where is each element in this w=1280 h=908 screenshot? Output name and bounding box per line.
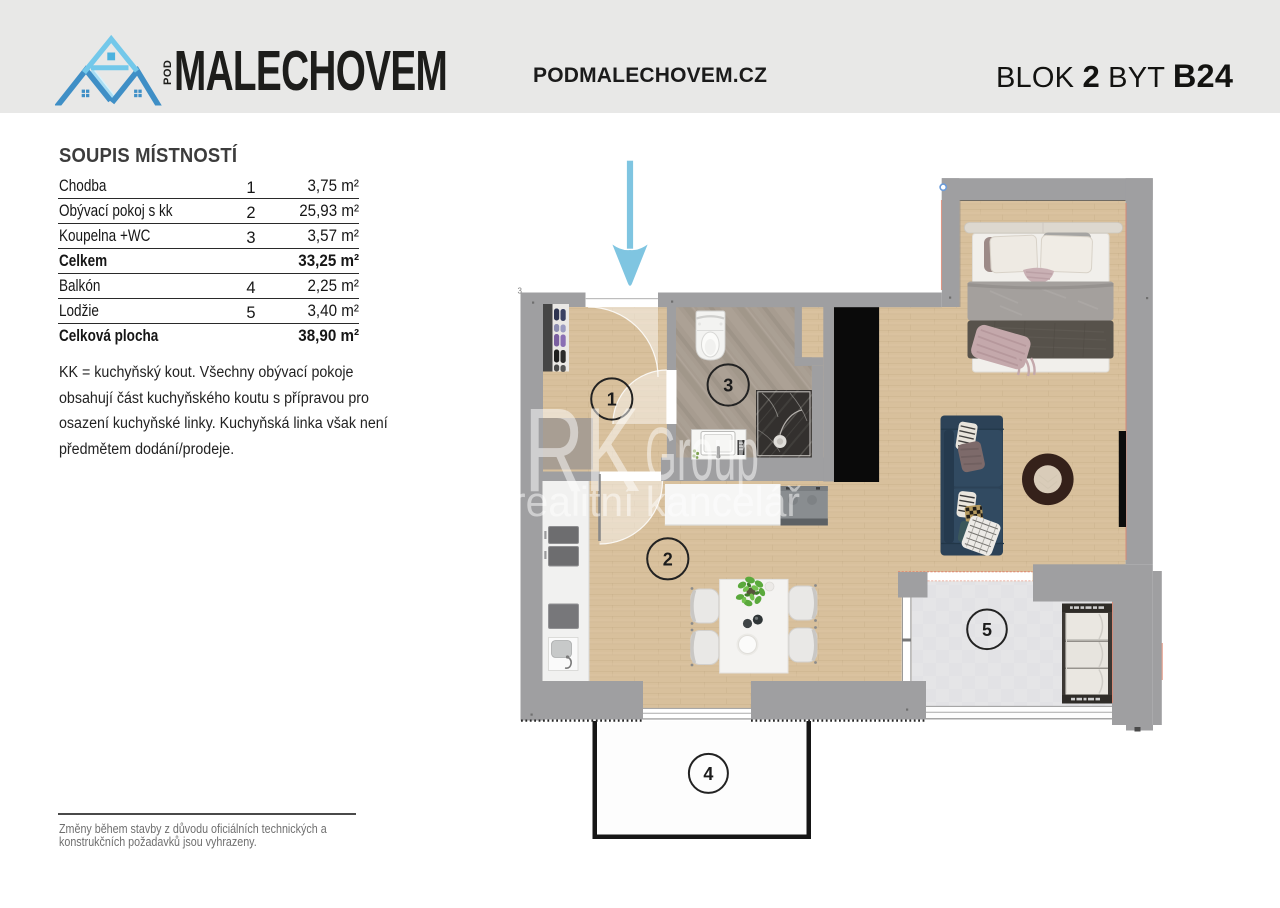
svg-text:4: 4 <box>703 764 713 784</box>
svg-text:realitní kancelář: realitní kancelář <box>512 478 801 525</box>
svg-text:2: 2 <box>663 549 673 569</box>
svg-text:3: 3 <box>518 287 523 296</box>
svg-text:3: 3 <box>723 376 733 396</box>
svg-text:5: 5 <box>982 620 992 640</box>
